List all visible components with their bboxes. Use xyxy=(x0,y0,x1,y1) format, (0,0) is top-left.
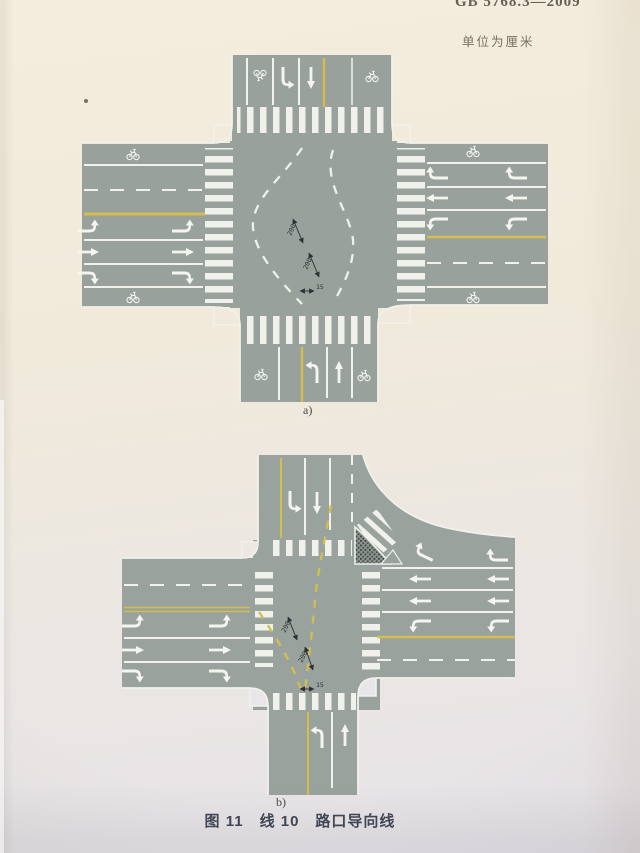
intersection-diagram-b: 200 200 15 xyxy=(0,440,640,830)
crosswalk-south xyxy=(272,693,356,710)
crosswalk-north xyxy=(270,540,352,556)
intersection-diagram-a: 200 200 15 xyxy=(0,0,640,440)
crosswalk-north xyxy=(237,107,389,133)
crosswalk-east xyxy=(397,148,425,301)
crosswalk-east xyxy=(362,570,380,673)
figure-caption: 图 11 线 10 路口导向线 xyxy=(160,810,440,831)
page-edge-highlight xyxy=(0,400,4,853)
crosswalk-west xyxy=(205,148,233,303)
crosswalk-west xyxy=(255,567,273,667)
dimension-label: 15 xyxy=(316,283,324,291)
subfigure-label-a: a) xyxy=(303,403,312,418)
crosswalk-south xyxy=(244,316,376,344)
subfigure-label-b: b) xyxy=(276,795,286,810)
dimension-label: 15 xyxy=(316,681,324,689)
